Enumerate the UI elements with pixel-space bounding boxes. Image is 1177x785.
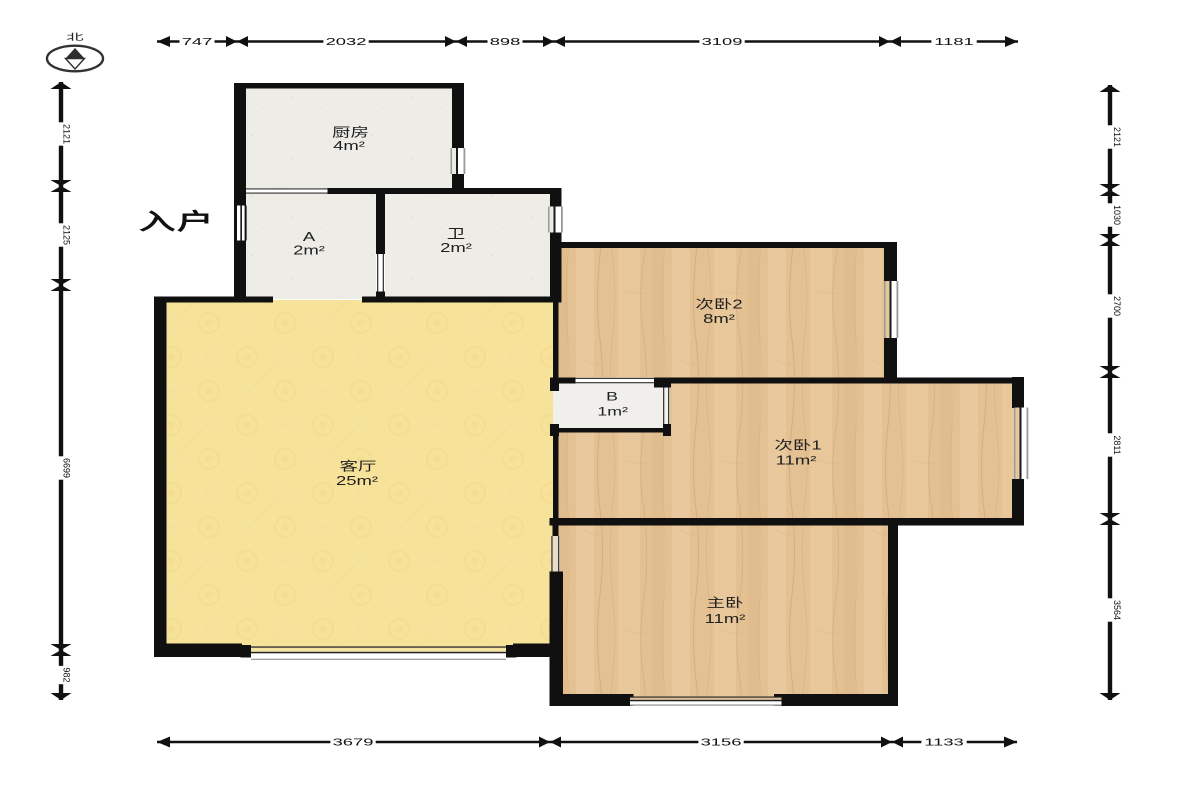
svg-text:2121: 2121	[61, 124, 71, 144]
svg-text:8m²: 8m²	[703, 313, 735, 326]
svg-text:2121: 2121	[1112, 127, 1122, 147]
svg-text:厨房: 厨房	[332, 125, 369, 139]
svg-text:982: 982	[61, 667, 71, 682]
svg-text:1181: 1181	[934, 36, 973, 48]
svg-text:898: 898	[490, 36, 521, 48]
svg-text:3156: 3156	[701, 736, 742, 748]
svg-text:747: 747	[182, 36, 213, 48]
svg-text:次卧2: 次卧2	[695, 297, 742, 311]
svg-text:2m²: 2m²	[440, 242, 472, 255]
svg-text:25m²: 25m²	[336, 475, 378, 488]
svg-text:11m²: 11m²	[705, 613, 746, 626]
svg-text:11m²: 11m²	[776, 454, 817, 467]
svg-text:1030: 1030	[1112, 205, 1122, 225]
svg-text:2m²: 2m²	[293, 244, 325, 257]
svg-text:入户: 入户	[139, 209, 215, 234]
svg-text:2032: 2032	[326, 36, 367, 48]
svg-text:A: A	[303, 231, 316, 244]
svg-text:6699: 6699	[61, 458, 71, 478]
svg-text:主卧: 主卧	[707, 596, 744, 610]
svg-text:3109: 3109	[702, 36, 743, 48]
svg-text:北: 北	[66, 33, 84, 42]
svg-text:卫: 卫	[447, 228, 465, 241]
svg-text:次卧1: 次卧1	[774, 438, 821, 452]
svg-text:2125: 2125	[61, 225, 71, 245]
svg-text:4m²: 4m²	[333, 140, 365, 153]
svg-text:1m²: 1m²	[597, 405, 628, 418]
svg-text:客厅: 客厅	[340, 459, 377, 473]
svg-text:2811: 2811	[1112, 435, 1122, 454]
svg-text:3564: 3564	[1112, 600, 1122, 620]
svg-text:2700: 2700	[1112, 296, 1122, 316]
svg-text:B: B	[606, 390, 618, 403]
svg-text:1133: 1133	[924, 736, 963, 748]
svg-text:3679: 3679	[333, 736, 374, 748]
